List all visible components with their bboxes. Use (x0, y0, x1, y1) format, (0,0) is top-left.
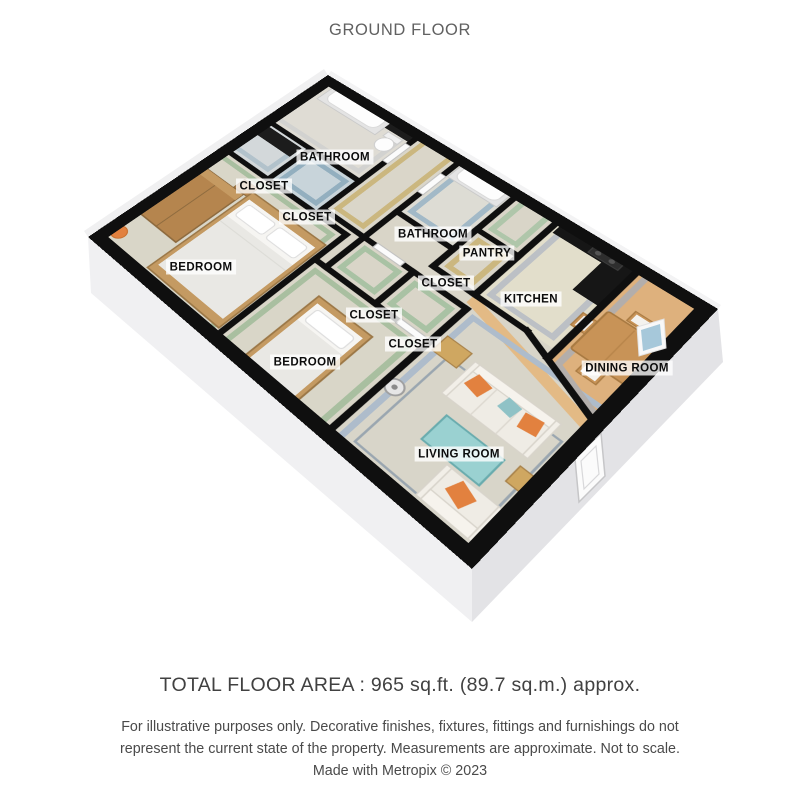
floorplan-svg (88, 75, 718, 569)
floorplan-page: GROUND FLOOR (0, 0, 800, 800)
floorplan-3d (88, 75, 718, 569)
floorplan-scene: BATHROOMCLOSETCLOSETBATHROOMPANTRYBEDROO… (0, 0, 800, 800)
